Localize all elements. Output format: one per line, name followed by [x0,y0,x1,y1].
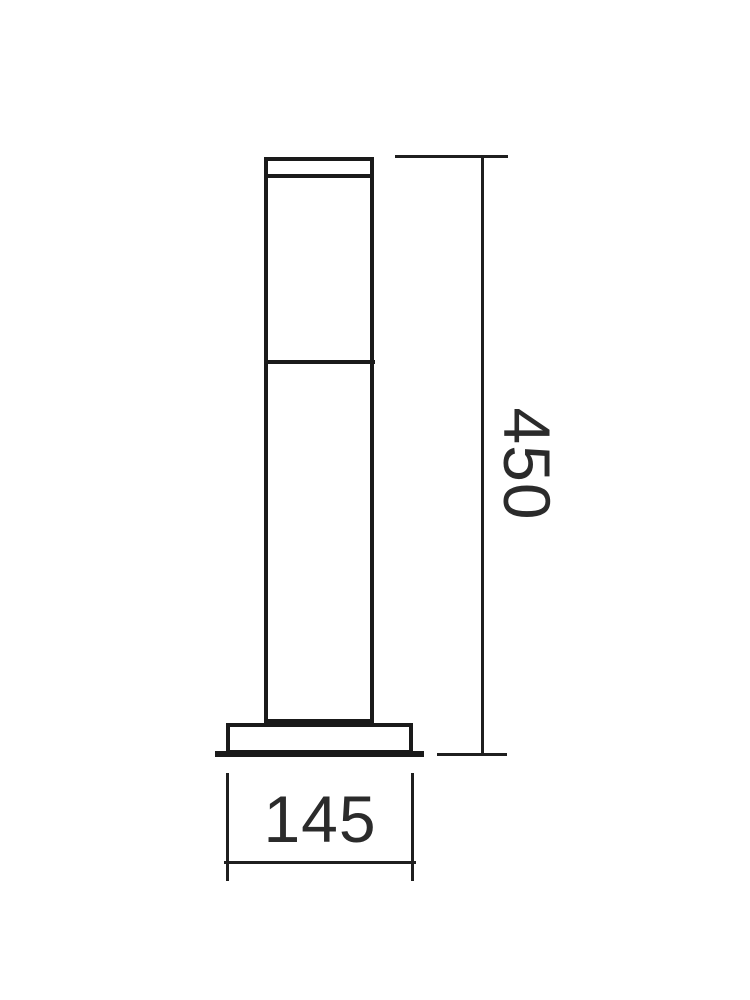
lamp-diffuser-divider-line [264,360,375,364]
height-dim-bottom-extension-line [437,753,507,756]
lamp-cap-line [268,174,370,178]
drawing-canvas: 450 145 [0,0,750,1000]
height-dim-label: 450 [492,364,562,564]
ground-line [215,751,424,757]
height-dim-line [481,155,484,755]
width-dim-line [224,861,416,864]
height-dim-top-extension-line [395,155,508,158]
width-dim-label: 145 [220,784,420,854]
lamp-base-plate [226,723,413,754]
lamp-post-outline [264,157,374,723]
